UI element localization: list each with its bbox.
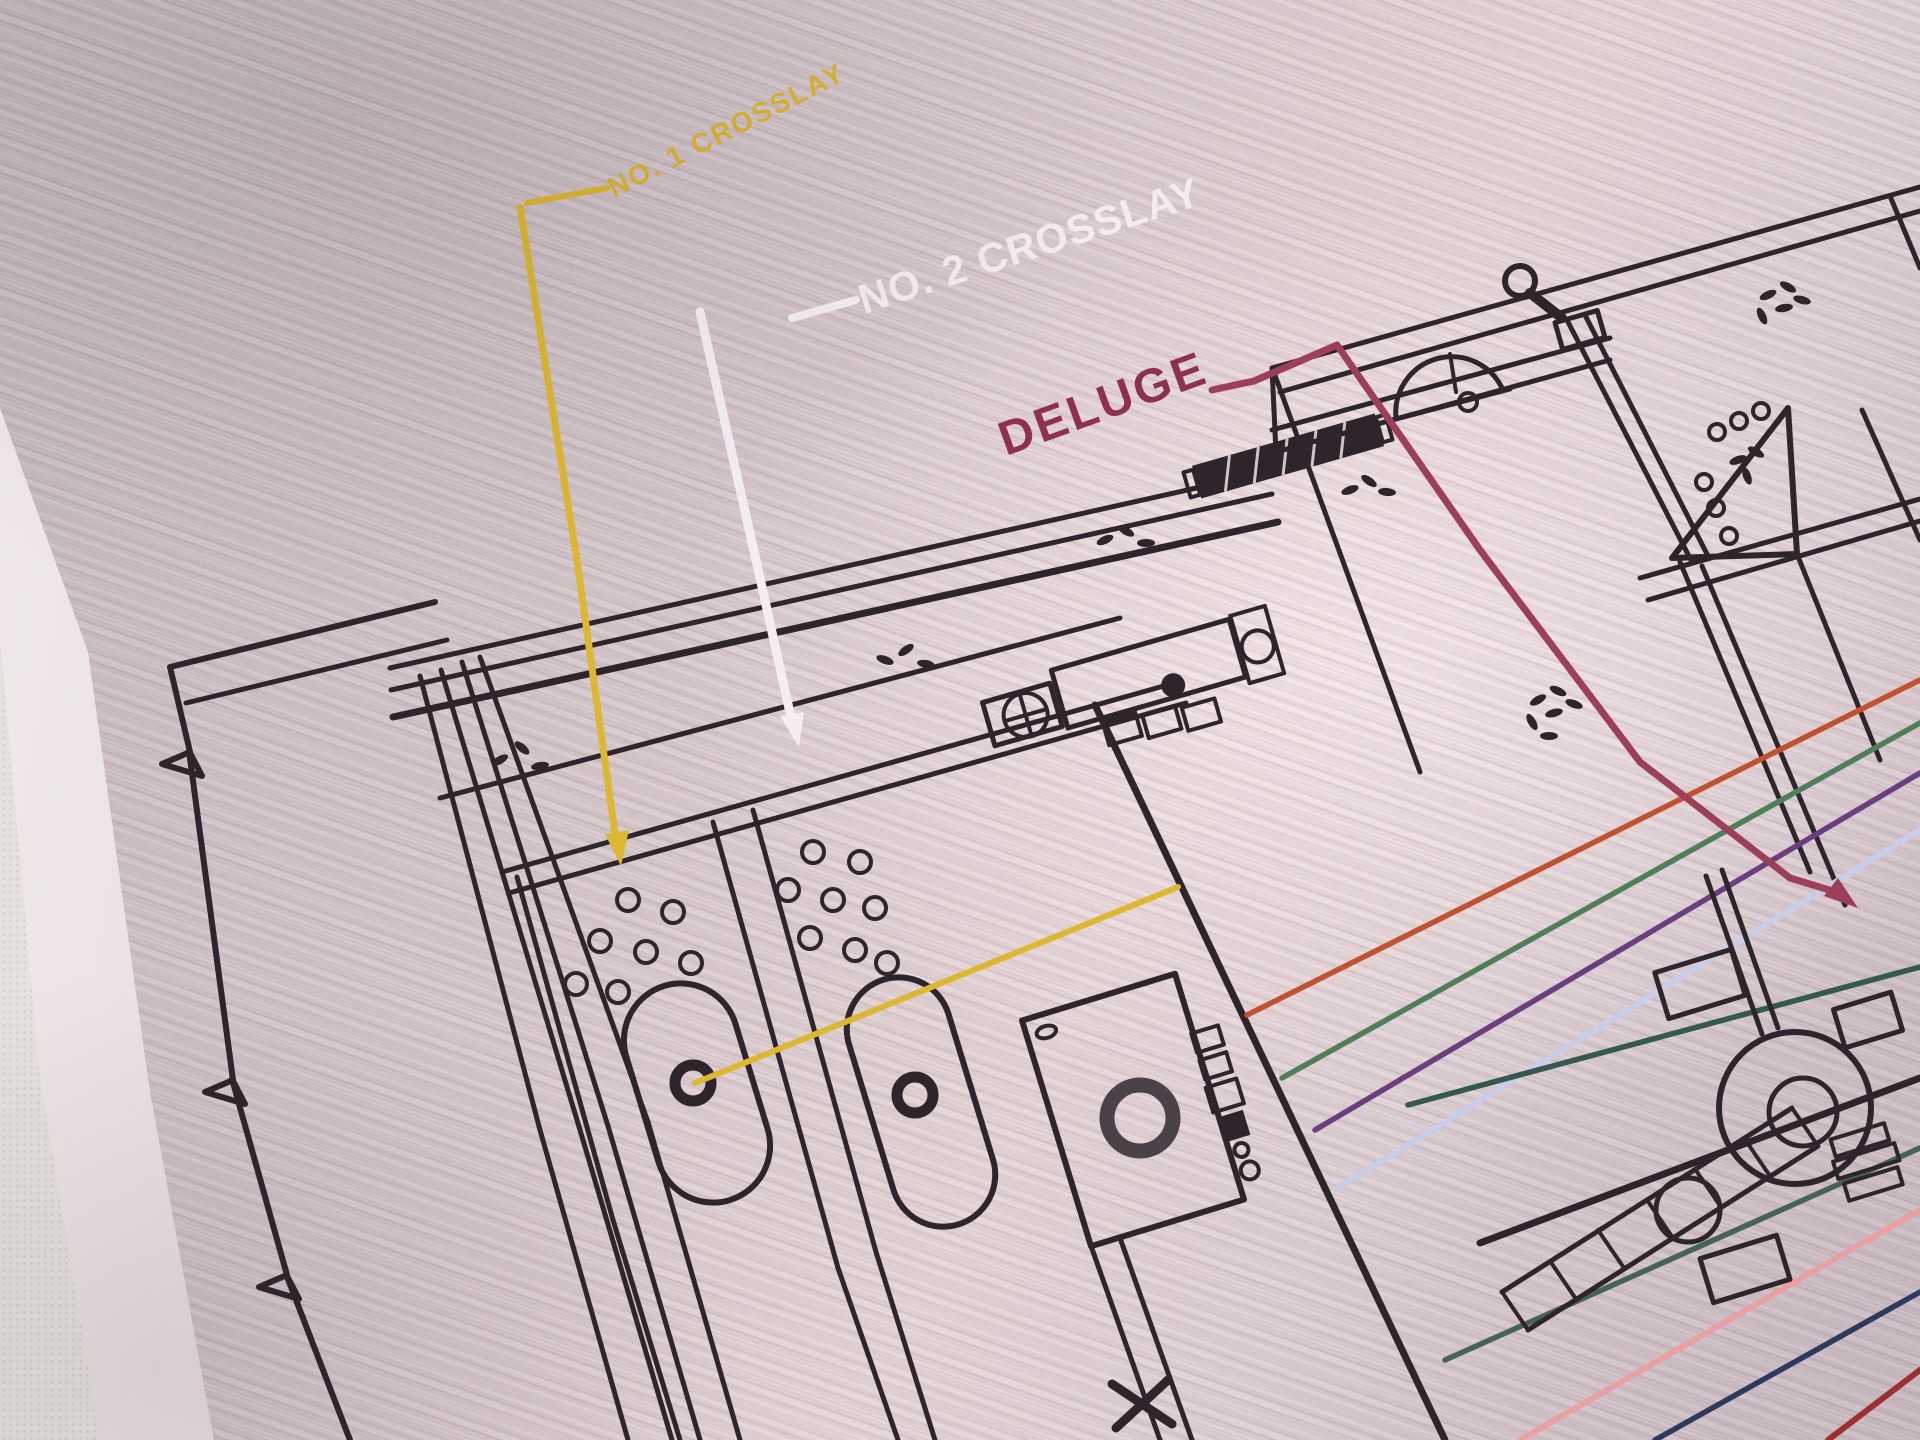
labels: NO. 1 CROSSLAY NO. 2 CROSSLAY DELUGE xyxy=(603,57,1215,467)
deluge-label: DELUGE xyxy=(992,342,1215,466)
hose-line-purple xyxy=(1315,773,1920,1130)
hosebed-rails xyxy=(390,472,1278,893)
intake-dome xyxy=(1388,354,1510,421)
hose-line-darkred xyxy=(1828,1370,1920,1440)
front-section-outline xyxy=(162,602,447,1440)
deck-gun-handle xyxy=(1505,266,1708,562)
hose-line-navy xyxy=(1655,1292,1920,1440)
hosebed-vertical-rails xyxy=(420,657,740,1440)
crosslay2-label: NO. 2 CROSSLAY xyxy=(853,169,1206,323)
suction-hose-ladder xyxy=(1480,1078,1920,1330)
gusset-plate xyxy=(1672,403,1880,905)
rivet-marks xyxy=(490,279,1812,771)
etched-diagram: NO. 1 CROSSLAY NO. 2 CROSSLAY DELUGE xyxy=(0,0,1920,1440)
down-arrow-icon xyxy=(780,712,804,747)
crosslay1-label: NO. 1 CROSSLAY xyxy=(603,57,850,204)
crosslay2-outlet-port xyxy=(897,1077,933,1113)
hose-line-yellow xyxy=(695,887,1178,1083)
crosslay1-slot xyxy=(610,969,785,1217)
deluge-leader xyxy=(1212,345,1858,908)
photo-of-etched-plate: { "labels": { "crosslay1": { "text": "NO… xyxy=(0,0,1920,1440)
crosslay2-leader xyxy=(700,300,856,747)
discharge-module xyxy=(1022,705,1445,1440)
